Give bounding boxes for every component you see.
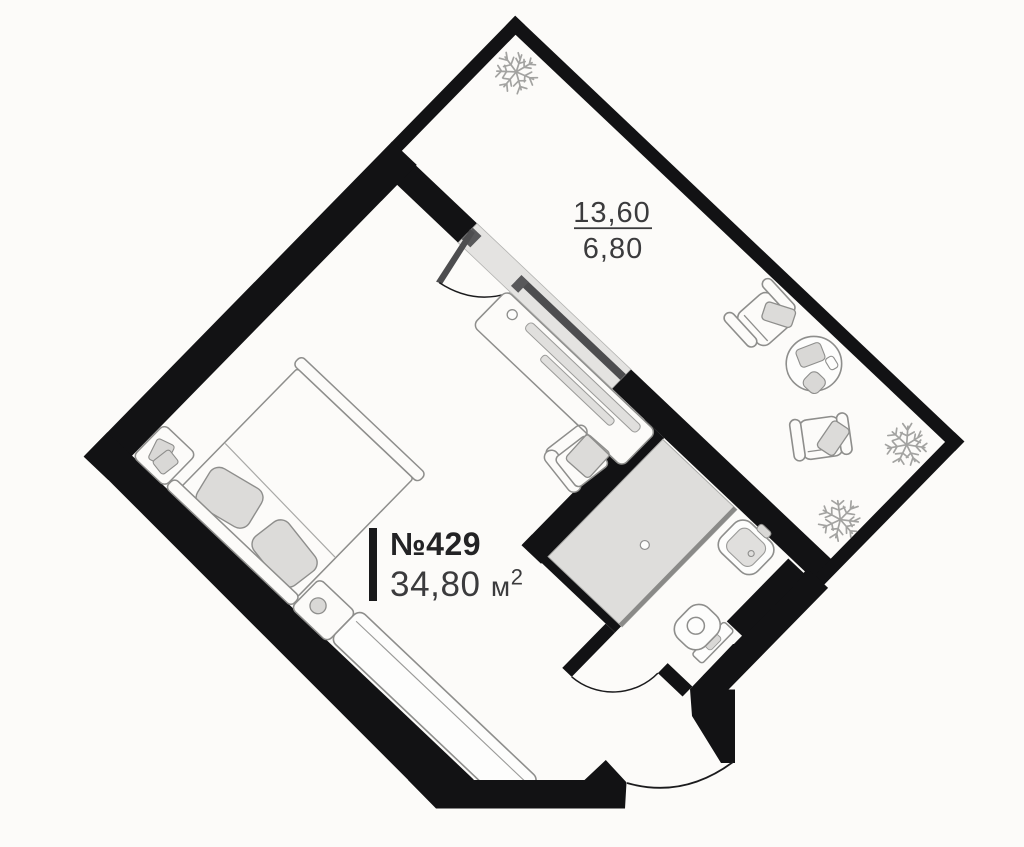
svg-text:6,80: 6,80 <box>583 233 643 265</box>
svg-text:13,60: 13,60 <box>573 197 651 229</box>
svg-text:34,80 м2: 34,80 м2 <box>390 565 524 605</box>
svg-text:№429: №429 <box>390 526 481 562</box>
